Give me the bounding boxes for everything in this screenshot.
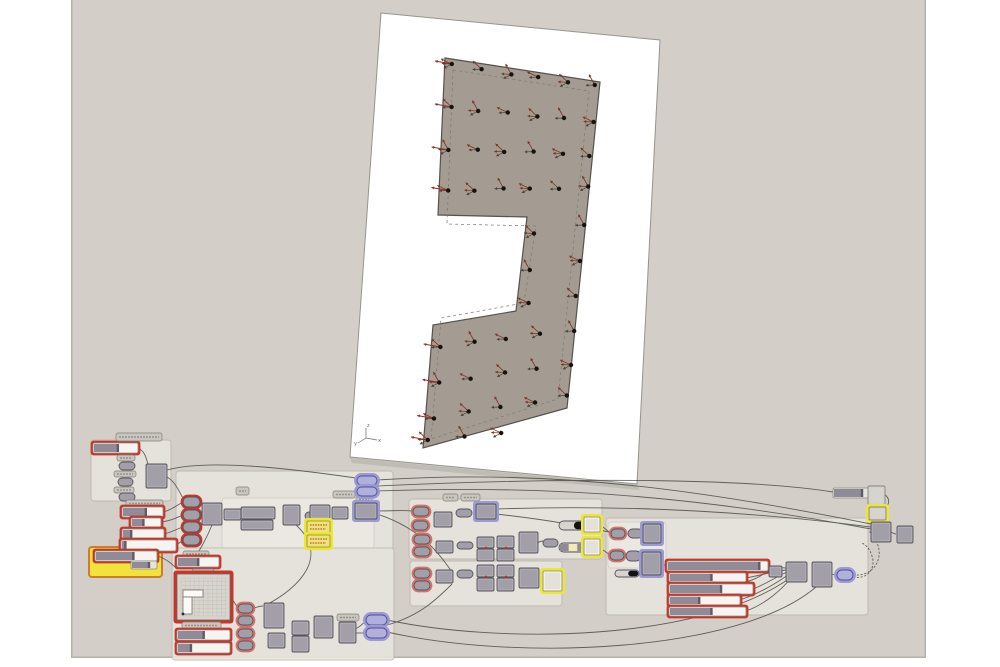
grid-point [578,259,582,263]
slider-fill [132,562,149,568]
grid-point [591,120,595,124]
component[interactable] [332,507,348,519]
component[interactable] [477,549,494,561]
data-panel[interactable] [581,536,603,558]
slider-handle[interactable] [130,530,132,538]
selected-param-capsule[interactable] [354,484,380,499]
param-capsule[interactable] [608,549,627,563]
component[interactable] [497,536,514,548]
slider-fill [132,519,143,526]
component[interactable] [283,505,300,525]
grid-point [586,184,590,188]
grid-point [526,301,530,305]
param-capsule[interactable] [181,520,203,535]
component[interactable] [477,578,494,591]
grid-point [472,340,476,344]
grid-point [538,332,542,336]
grid-point [503,370,507,374]
component[interactable] [264,603,284,628]
slider-handle[interactable] [117,444,119,452]
component[interactable] [868,486,885,505]
component[interactable] [436,541,453,553]
grid-point [536,75,540,79]
param-capsule[interactable] [412,579,433,593]
grid-point [532,231,536,235]
graph-grip[interactable] [182,613,185,616]
grid-point [533,400,537,404]
selected-param-capsule[interactable] [363,625,390,641]
grid-point [432,416,436,420]
axis-label: z [367,423,370,429]
axis-label: x [378,438,381,444]
slider-fill [668,562,759,570]
slider-fill [178,558,198,566]
grid-point [479,67,483,71]
selected-component[interactable] [352,500,380,522]
component[interactable] [497,549,514,561]
param-capsule[interactable] [412,545,433,559]
grid-point [574,294,578,298]
component[interactable] [224,509,241,520]
slider-handle[interactable] [190,644,192,652]
param-capsule[interactable] [236,627,256,641]
number-slider[interactable] [175,555,222,570]
component[interactable] [241,520,273,530]
grid-point [476,109,480,113]
component[interactable] [497,565,514,577]
param-capsule[interactable] [412,533,433,547]
label-chip [114,487,134,493]
component[interactable] [497,578,514,591]
component[interactable] [897,526,913,543]
component[interactable] [292,636,309,652]
slider-fill [123,508,146,516]
component[interactable] [812,562,832,587]
param-capsule[interactable] [236,602,256,616]
component[interactable] [314,616,333,638]
slider-fill [96,552,133,560]
value-panel[interactable] [304,532,333,550]
grid-point [476,148,480,152]
grid-point [566,80,570,84]
component[interactable] [477,537,494,548]
selected-param-capsule[interactable] [834,567,856,583]
grid-point [509,72,513,76]
param-capsule[interactable] [236,639,256,653]
graph-curve-step [183,597,192,614]
slider-fill [670,597,699,604]
slider-fill [670,585,721,593]
grid-point [582,223,586,227]
label-chip [461,494,480,501]
component[interactable] [436,570,453,583]
component[interactable] [202,503,222,525]
component[interactable] [786,562,807,582]
data-panel[interactable] [581,514,603,535]
slider-handle[interactable] [197,558,199,566]
label-chip [114,471,136,477]
param-capsule[interactable] [411,505,432,519]
grid-point [426,438,430,442]
label-chip [443,494,458,501]
number-slider[interactable] [175,628,233,643]
slider-handle[interactable] [698,597,700,604]
black-segment [628,571,638,576]
component[interactable] [268,633,285,648]
canvas-left-edge [71,0,73,658]
grid-point [531,149,535,153]
grid-point [528,186,532,190]
param-capsule[interactable] [543,539,558,547]
grid-point [467,409,471,413]
number-slider[interactable] [175,641,233,656]
selected-component[interactable] [473,501,499,522]
label-chip [116,433,162,441]
grid-point [569,363,573,367]
label-chip [236,487,249,495]
label-chip [337,614,359,621]
grid-point [528,268,532,272]
param-capsule[interactable] [119,462,135,470]
component[interactable] [241,507,275,519]
param-capsule[interactable] [609,527,628,541]
axis-label: y [354,441,357,447]
grid-point [498,405,502,409]
param-capsule[interactable] [236,614,256,628]
viewport-3d[interactable]: zxy [350,13,660,490]
grid-point [535,114,539,118]
slider-handle[interactable] [758,562,760,570]
graph-curve-step [183,590,203,597]
grid-point [468,377,472,381]
grid-point [438,345,442,349]
graph-mapper[interactable] [174,571,234,624]
slider-fill [834,489,862,497]
slider-handle[interactable] [203,631,205,639]
grid-point [501,186,505,190]
slider-handle[interactable] [145,508,147,516]
param-capsule[interactable] [456,509,472,517]
grid-point [499,431,503,435]
grid-point [446,148,450,152]
slider-handle[interactable] [142,519,144,526]
grid-point [450,62,454,66]
grid-point [446,188,450,192]
slider-fill [123,530,131,538]
component[interactable] [769,566,782,577]
wire-nub [485,576,488,579]
number-slider[interactable] [667,605,749,619]
component[interactable] [146,464,167,488]
grid-point [561,152,565,156]
number-slider[interactable] [131,561,157,569]
rhino-grasshopper-screenshot: zxy [0,0,1000,667]
param-capsule[interactable] [457,542,473,549]
label-chip [117,455,135,461]
grid-point [572,329,576,333]
wire-nub [485,547,488,550]
grid-point [502,150,506,154]
label-chip [333,491,355,498]
selected-component[interactable] [640,521,664,546]
slider-handle[interactable] [710,574,712,581]
grid-point [504,337,508,341]
param-capsule[interactable] [457,570,473,578]
component[interactable] [871,522,891,542]
component[interactable] [292,621,309,635]
component[interactable] [434,512,452,527]
slider-handle[interactable] [148,562,150,568]
grid-point [437,380,441,384]
param-capsule[interactable] [118,478,133,486]
param-capsule[interactable] [411,519,431,533]
grid-point [587,154,591,158]
grid-point [593,83,597,87]
data-panel[interactable] [540,568,565,594]
component[interactable] [477,565,494,577]
grid-point [565,393,569,397]
param-capsule[interactable] [181,533,203,548]
wire-nub [505,547,508,550]
value-list[interactable] [615,570,639,577]
application-window: zxy [0,0,1000,667]
param-capsule[interactable] [181,495,203,510]
grid-point [449,105,453,109]
component[interactable] [519,532,538,553]
number-slider[interactable] [91,441,141,456]
param-capsule[interactable] [412,567,433,581]
slider-fill [178,644,191,652]
slider-handle[interactable] [710,608,712,615]
canvas-right-edge [925,0,927,658]
param-capsule[interactable] [626,551,641,561]
slider-fill [94,444,118,452]
component[interactable] [519,568,539,588]
selected-component[interactable] [639,549,664,578]
grid-point [462,434,466,438]
grid-point [562,116,566,120]
slider-handle[interactable] [132,552,134,560]
component[interactable] [339,622,356,643]
wire-nub [505,576,508,579]
slider-handle[interactable] [720,585,722,593]
slider-fill [178,631,204,639]
grid-point [472,189,476,193]
component[interactable] [866,504,889,523]
grid-point [534,367,538,371]
grid-point [506,110,510,114]
grid-point [557,187,561,191]
slider-fill [670,574,711,581]
slider-fill [670,608,711,615]
slider-handle[interactable] [861,489,863,497]
component[interactable] [310,505,330,519]
